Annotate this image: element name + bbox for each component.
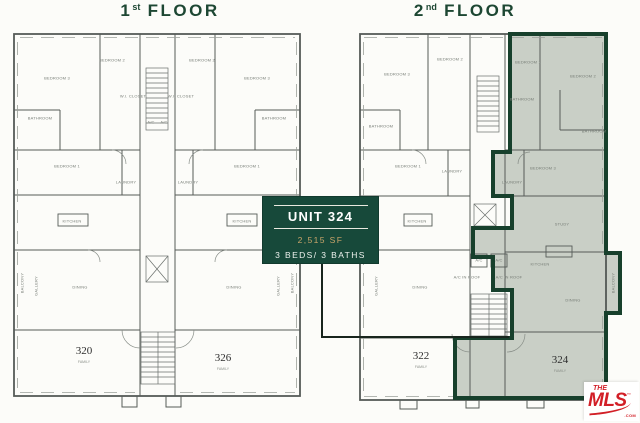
room-label: LAUNDRY — [502, 180, 522, 185]
room-label: A/C — [147, 120, 154, 125]
unit-324-callout-card: UNIT 324 2,515 SF 3 BEDS/ 3 BATHS — [262, 196, 379, 264]
room-label: A/C — [475, 258, 482, 263]
room-label: DINING — [226, 285, 241, 290]
room-label: STUDY — [555, 222, 570, 227]
room-label: A/C — [495, 258, 502, 263]
room-label: BATHROOM — [369, 124, 393, 129]
room-label: W.I. CLOSET — [168, 94, 194, 99]
room-label: BEDROOM 1 — [395, 164, 421, 169]
room-label: BEDROOM 2 — [189, 58, 215, 63]
room-label: BEDROOM 2 — [437, 57, 463, 62]
room-label: LAUNDRY — [178, 180, 198, 185]
second-floor-title: 2nd FLOOR — [414, 1, 516, 21]
room-label: GALLERY — [276, 276, 281, 296]
unit-322-number: 322 — [413, 350, 430, 362]
room-label: LAUNDRY — [442, 169, 462, 174]
callout-divider — [274, 205, 368, 206]
room-label: BATHROOM — [582, 129, 606, 134]
first-floor-elevator — [146, 256, 168, 282]
unit-326-caption: FAMILY — [217, 367, 229, 371]
unit-322-caption: FAMILY — [415, 365, 427, 369]
room-label: DINING — [72, 285, 87, 290]
first-floor-doors — [88, 150, 227, 348]
room-label: BEDROOM 3 — [384, 72, 410, 77]
room-label: BEDROOM 1 — [234, 164, 260, 169]
unit-324-number: 324 — [552, 354, 569, 366]
callout-connector-line — [322, 264, 509, 337]
room-label: BEDROOM 3 — [44, 76, 70, 81]
room-label: BATHROOM — [510, 97, 534, 102]
themls-logo: THE MLS™ .COM — [584, 382, 639, 421]
room-label: A/C IN ROOF — [454, 275, 481, 280]
room-label: LAUNDRY — [116, 180, 136, 185]
room-label: BATHROOM — [28, 116, 52, 121]
room-label: BALCONY — [290, 273, 295, 294]
room-label: GALLERY — [374, 276, 379, 296]
room-label: KITCHEN — [233, 219, 252, 224]
room-label: DINING — [565, 298, 580, 303]
room-label: A/C IN ROOF — [496, 275, 523, 280]
callout-area: 2,515 SF — [263, 235, 378, 245]
room-label: KITCHEN — [408, 219, 427, 224]
room-label: KITCHEN — [531, 262, 550, 267]
unit-326-number: 326 — [215, 352, 232, 364]
room-label: BEDROOM 1 — [515, 60, 541, 65]
first-floor-walls — [14, 34, 300, 407]
unit-324-caption: FAMILY — [554, 369, 566, 373]
unit-324-highlight-fill — [455, 34, 620, 398]
room-label: BATHROOM — [262, 116, 286, 121]
room-label: BEDROOM 3 — [244, 76, 270, 81]
first-floor-stairs — [141, 68, 175, 384]
first-floor-windows — [18, 38, 297, 393]
room-label: BEDROOM 3 — [530, 166, 556, 171]
room-label: BEDROOM 2 — [99, 58, 125, 63]
callout-beds-baths: 3 BEDS/ 3 BATHS — [263, 250, 378, 260]
room-label: KITCHEN — [63, 219, 82, 224]
callout-divider — [274, 228, 368, 229]
unit-320-caption: FAMILY — [78, 360, 90, 364]
first-floor-title: 1st FLOOR — [120, 1, 219, 21]
floorplan-graphic: 1st FLOOR 2nd FLOOR BEDROOM 3 BEDROOM 2 … — [0, 0, 640, 423]
room-label: DINING — [412, 285, 427, 290]
themls-logo-com: .COM — [624, 413, 636, 418]
room-label: BALCONY — [611, 273, 616, 294]
room-label: BALCONY — [20, 273, 25, 294]
room-label: BEDROOM 2 — [570, 74, 596, 79]
callout-unit-title: UNIT 324 — [263, 209, 378, 224]
room-label: BEDROOM 1 — [54, 164, 80, 169]
second-floor-elevator — [474, 204, 496, 226]
room-label: GALLERY — [34, 276, 39, 296]
room-label: A/C — [160, 120, 167, 125]
room-label: W.I. CLOSET — [120, 94, 146, 99]
unit-320-number: 320 — [76, 345, 93, 357]
